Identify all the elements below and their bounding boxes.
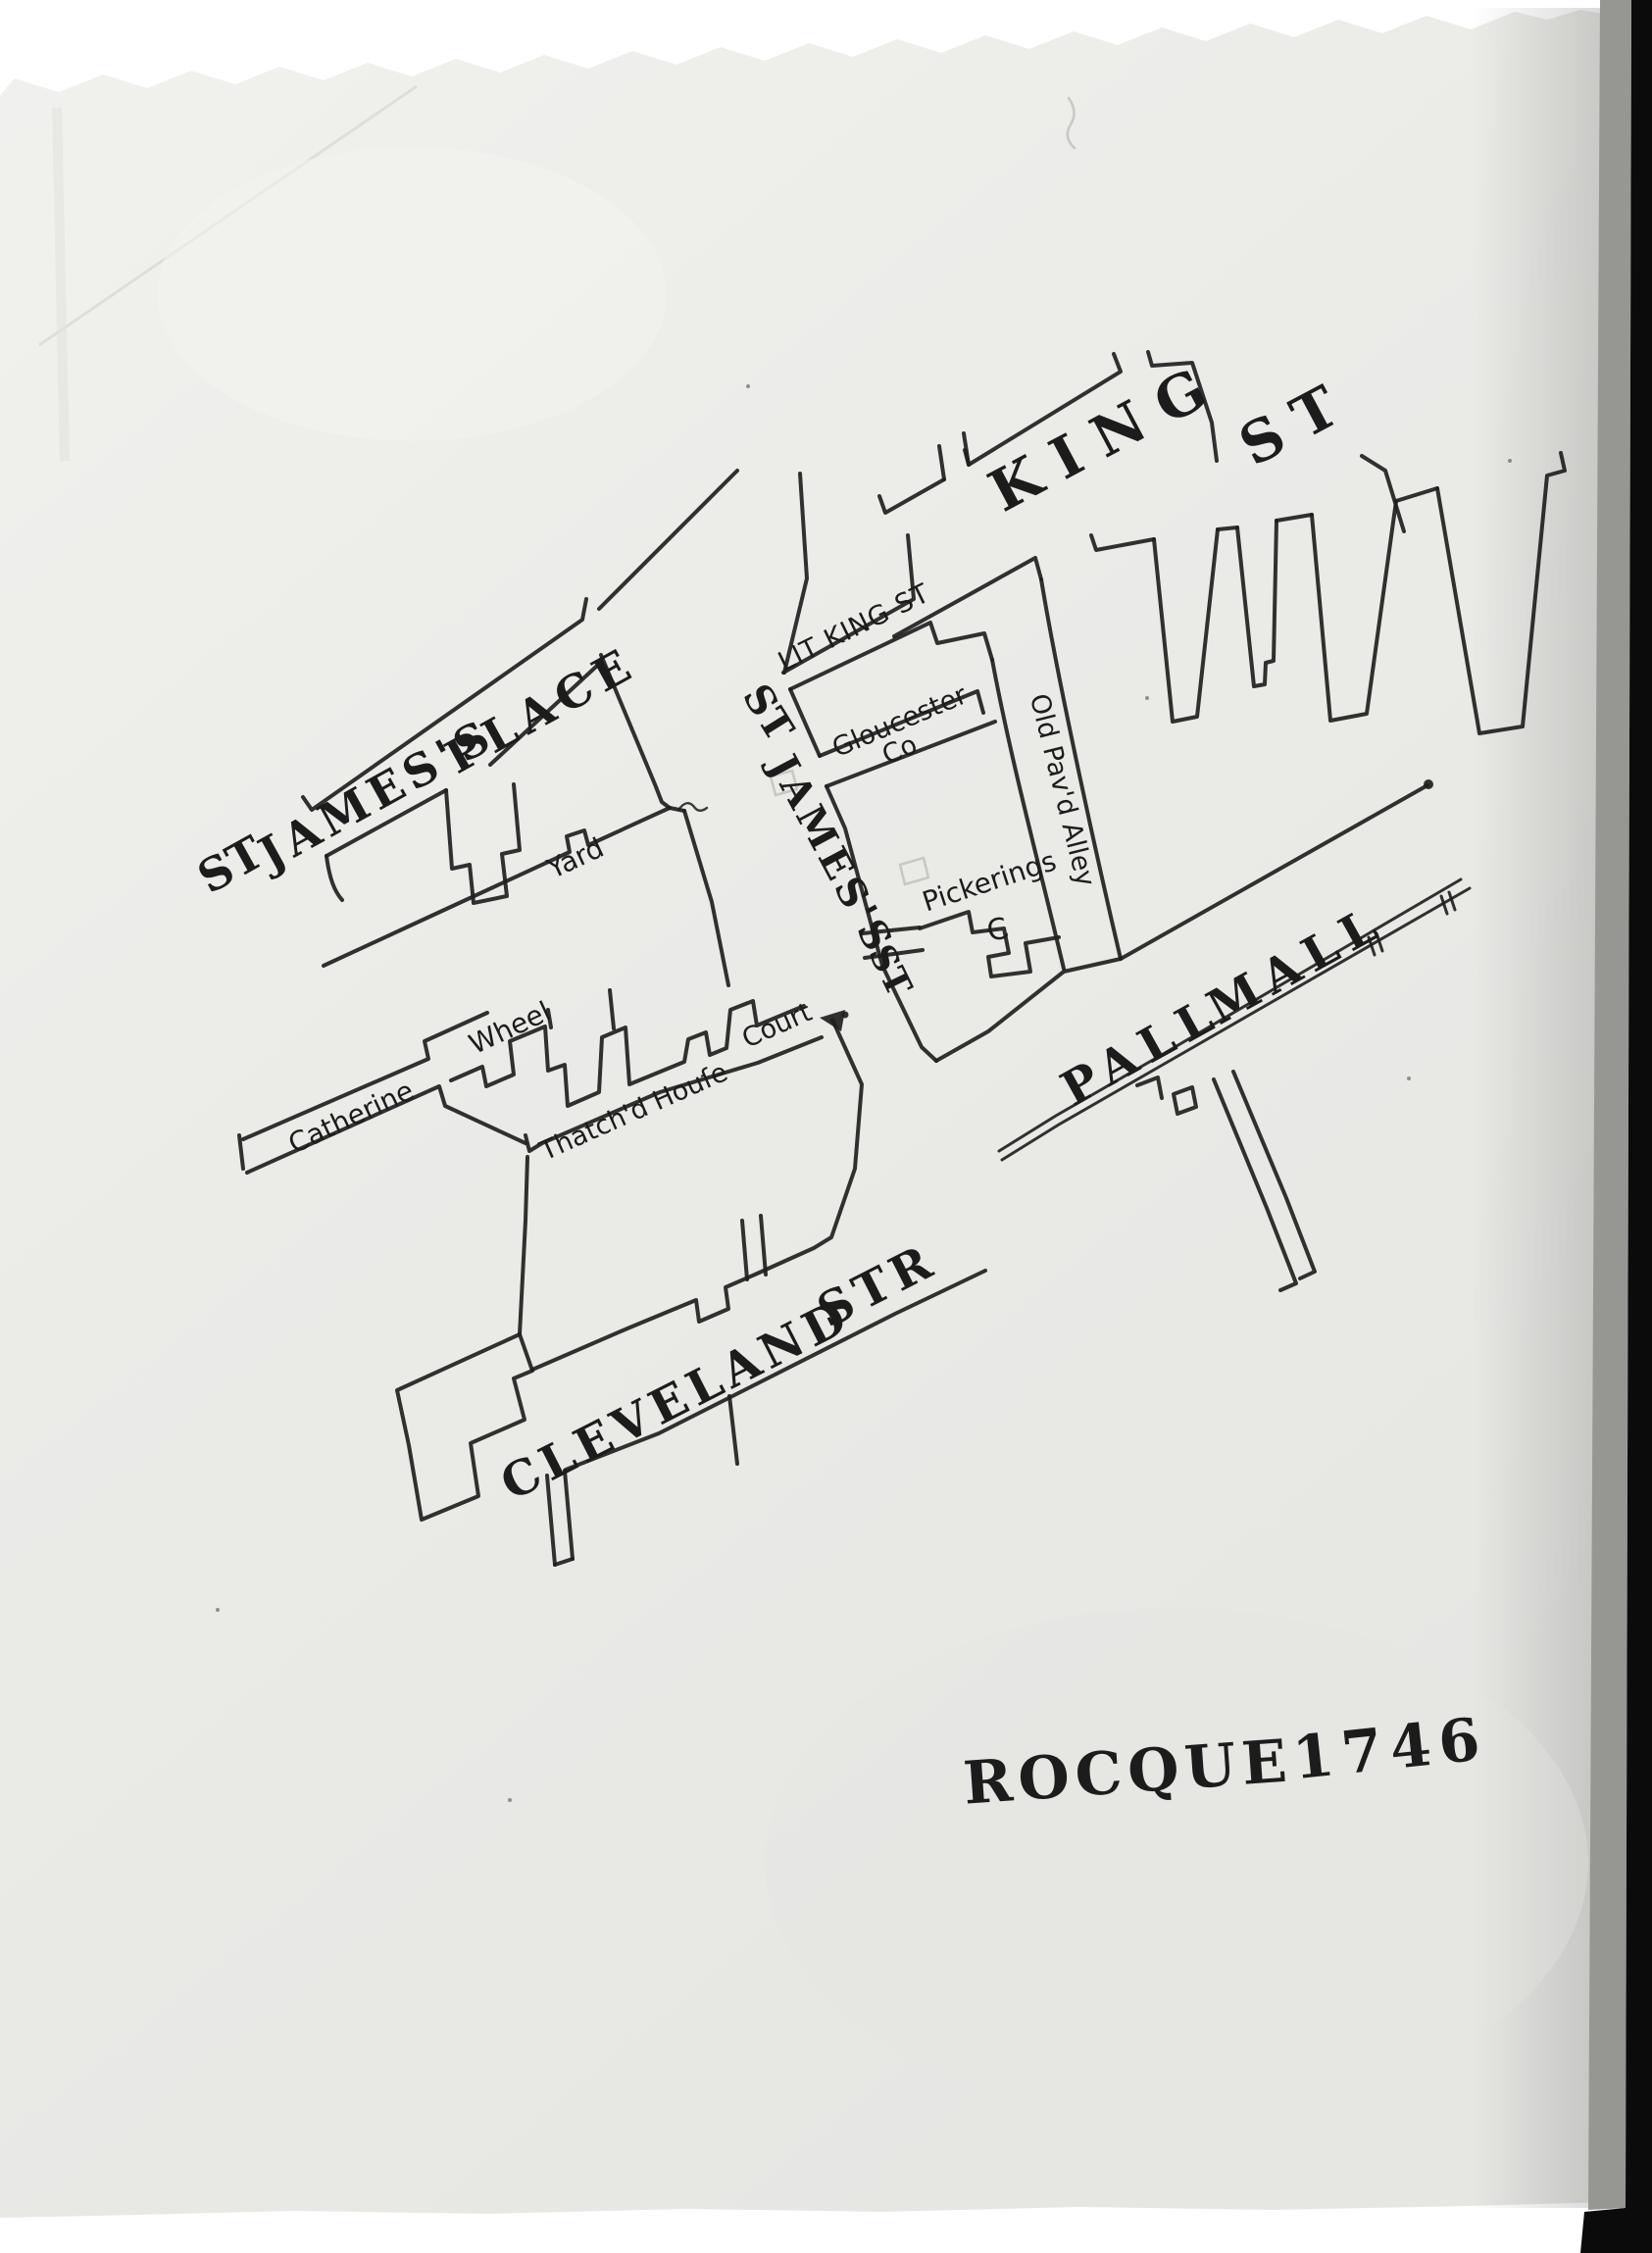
paper-sheet	[0, 8, 1614, 2218]
map-photo: KING ST LIT KING ST Gloucester Co Old Pa…	[0, 0, 1652, 2253]
